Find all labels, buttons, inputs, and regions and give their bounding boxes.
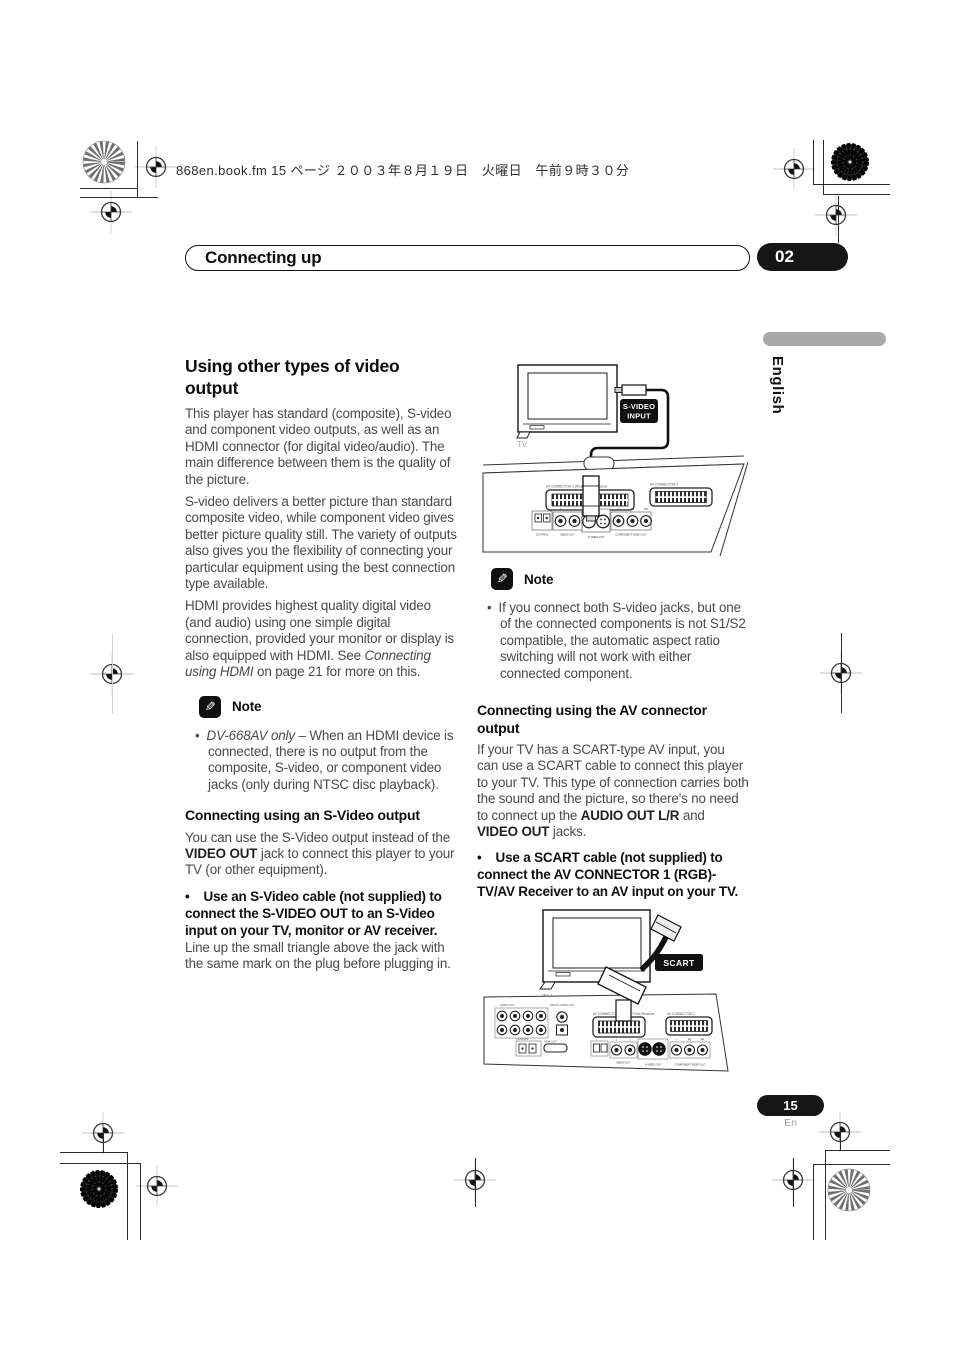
chapter-number-badge: 02	[757, 243, 848, 271]
print-header: 868en.book.fm 15 ページ ２００３年８月１９日 火曜日 午前９時…	[176, 160, 629, 179]
instruction-bullet: •Use a SCART cable (not supplied) to con…	[477, 849, 749, 900]
crop-line	[80, 188, 137, 189]
page-number-language: En	[757, 1117, 824, 1129]
scart-badge-label: SCART	[663, 958, 695, 968]
svideo-input-badge-line1: S-VIDEO	[623, 402, 655, 411]
registration-crosshair	[134, 145, 178, 189]
video-out-jacks	[553, 512, 582, 530]
svg-text:PR: PR	[644, 507, 648, 511]
paragraph: This player has standard (composite), S-…	[185, 406, 457, 488]
svideo-plug-inserted	[583, 476, 599, 521]
crop-line	[80, 197, 158, 198]
guide-line	[793, 1158, 794, 1207]
video-out-label: VIDEO OUT	[560, 533, 574, 537]
component-label: COMPONENT VIDEO OUT	[674, 1063, 706, 1067]
registration-crosshair	[772, 147, 816, 191]
crop-line	[813, 140, 814, 185]
note-pencil-icon: ✎	[491, 568, 513, 590]
svg-text:Y: Y	[676, 1038, 678, 1042]
crop-line	[823, 140, 824, 195]
crop-line	[137, 141, 138, 197]
svideo-out-label: S-VIDEO OUT	[645, 1063, 662, 1067]
registration-starburst	[827, 1168, 871, 1212]
crop-line	[60, 1163, 140, 1164]
note-header: ✎ Note	[491, 568, 749, 590]
note-pencil-icon: ✎	[199, 696, 221, 718]
control-jacks	[532, 511, 552, 530]
digital-audio-label: DIGITAL AUDIO OUT	[550, 1003, 575, 1007]
crop-line	[140, 1163, 141, 1240]
crop-line	[813, 1164, 814, 1240]
crop-line	[813, 1164, 890, 1165]
audio-out-label: AUDIO OUT	[500, 1003, 515, 1007]
guide-line	[112, 634, 113, 714]
tv-illustration	[517, 365, 617, 438]
page-number-badge: 15	[757, 1095, 824, 1116]
svideo-input-badge-line2: INPUT	[627, 412, 651, 421]
right-column: TV S-VIDEO INPUT AV CONNECTOR 1 (RGB)-TV…	[477, 358, 749, 1075]
hdmi-label: HDMI OUT	[544, 1040, 557, 1044]
chapter-title-pill: Connecting up	[185, 245, 750, 271]
svg-text:PB: PB	[688, 1038, 692, 1042]
control-jacks	[516, 1041, 541, 1056]
crop-line	[823, 194, 890, 195]
tv-label: TV	[517, 440, 528, 449]
svg-text:PR: PR	[701, 1038, 705, 1042]
crop-line	[825, 1150, 890, 1151]
crop-line	[813, 184, 890, 185]
section-heading: Using other types of video output	[185, 355, 457, 399]
language-label: English	[769, 356, 786, 414]
registration-crosshair	[135, 1164, 179, 1208]
scart2-label: AV CONNECTOR 2	[667, 1012, 695, 1016]
note-bullet: •If you connect both S-video jacks, but …	[477, 600, 749, 682]
guide-line	[841, 633, 842, 713]
svg-text:Y: Y	[618, 507, 620, 511]
scart-connector-2	[650, 488, 712, 506]
control-label: CONTROL	[516, 1037, 529, 1041]
svideo-connection-diagram: TV S-VIDEO INPUT AV CONNECTOR 1 (RGB)-TV…	[480, 358, 748, 556]
note-bullet: •DV-668AV only – When an HDMI device is …	[185, 728, 457, 794]
guide-line	[840, 1132, 841, 1150]
guide-line	[103, 1133, 104, 1153]
crop-line	[127, 1152, 128, 1240]
paragraph: If your TV has a SCART-type AV input, yo…	[477, 742, 749, 840]
svg-text:PB: PB	[631, 507, 635, 511]
subsection-heading: Connecting using an S-Video output	[185, 807, 457, 825]
manual-page: 868en.book.fm 15 ページ ２００３年８月１９日 火曜日 午前９時…	[0, 0, 954, 1351]
panel-handle	[584, 457, 614, 470]
svideo-plug-end	[615, 385, 646, 395]
guide-line	[475, 1158, 476, 1207]
paragraph: HDMI provides highest quality digital vi…	[185, 598, 457, 680]
note-label: Note	[524, 572, 553, 587]
component-out-jacks	[611, 512, 651, 530]
paragraph: Line up the small triangle above the jac…	[185, 940, 457, 973]
control-label: CONTROL	[536, 533, 549, 537]
scart-connector-2	[666, 1017, 712, 1035]
left-column: Using other types of video output This p…	[185, 355, 457, 979]
chapter-title: Connecting up	[205, 248, 321, 268]
scart2-label: AV CONNECTOR 2	[650, 483, 678, 487]
guide-line	[838, 196, 839, 243]
paragraph: S-video delivers a better picture than s…	[185, 494, 457, 592]
registration-starburst	[82, 140, 126, 184]
instruction-bullet: •Use an S-Video cable (not supplied) to …	[185, 888, 457, 939]
svideo-out-label: S-VIDEO OUT	[588, 535, 605, 539]
video-out-label: VIDEO OUT	[616, 1061, 630, 1065]
hdmi-out-port	[544, 1044, 567, 1052]
video-out-jacks	[610, 1042, 637, 1058]
note-header: ✎ Note	[199, 696, 457, 718]
registration-target	[77, 1167, 121, 1211]
component-out-jacks	[670, 1042, 710, 1058]
control-jacks-2	[591, 1041, 608, 1056]
scart-connection-diagram: TV SCART AUDIO OUT DIGITAL AUDIO OUT	[478, 907, 746, 1075]
crop-line	[60, 1152, 127, 1153]
subsection-heading: Connecting using the AV connector output	[477, 702, 749, 737]
component-label: COMPONENT VIDEO OUT	[615, 533, 647, 537]
svideo-out-jacks	[638, 1039, 668, 1059]
registration-target	[828, 140, 872, 184]
paragraph: You can use the S-Video output instead o…	[185, 830, 457, 879]
audio-out-jacks	[495, 1008, 548, 1038]
note-label: Note	[232, 699, 261, 714]
registration-crosshair	[814, 193, 858, 237]
tv-illustration	[540, 910, 650, 989]
language-tab-bar	[763, 332, 886, 346]
